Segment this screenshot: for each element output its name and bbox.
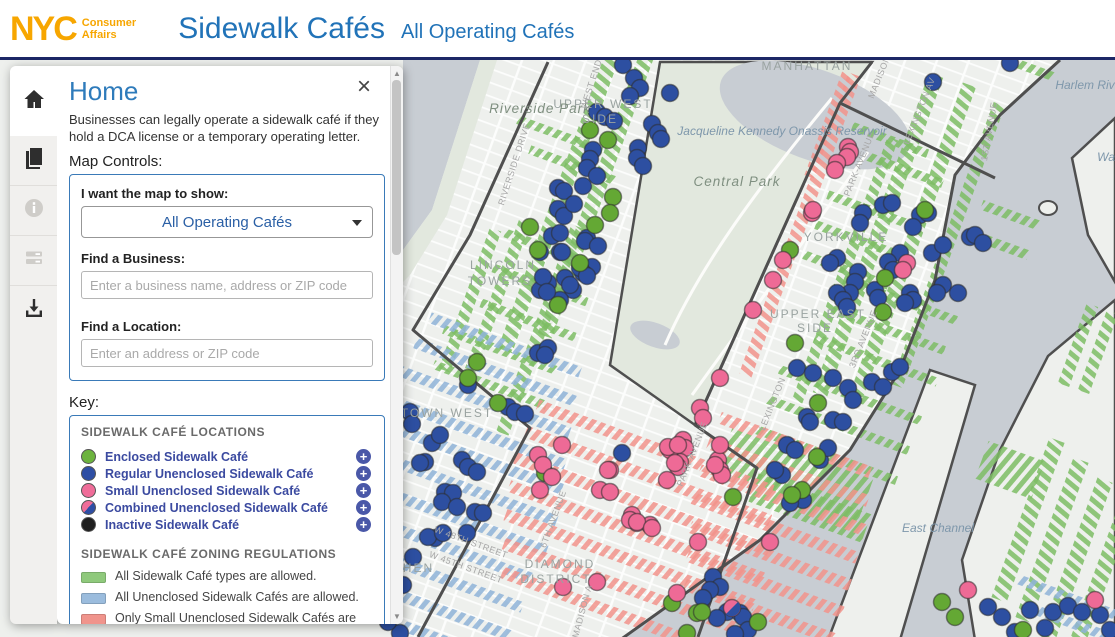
map-cafe-dot[interactable] [745,302,762,319]
map-cafe-dot[interactable] [1022,602,1039,619]
map-label-area: LINCOLN [470,258,536,272]
app-header: NYC Consumer Affairs Sidewalk Cafés All … [0,0,1115,60]
zoning-row: All Unenclosed Sidewalk Cafés are allowe… [81,590,373,605]
map-label-area: DISTRICT [520,572,591,586]
map-show-select[interactable]: All Operating Cafés [81,206,373,238]
map-cafe-dot[interactable] [572,255,589,272]
map-cafe-dot[interactable] [587,217,604,234]
chevron-down-icon [352,220,362,226]
map-label-park: Central Park [693,174,780,189]
map-cafe-dot[interactable] [934,594,951,611]
map-cafe-dot[interactable] [659,472,676,489]
map-cafe-dot[interactable] [644,520,661,537]
close-icon[interactable]: × [357,76,371,98]
sidebar-item-home[interactable] [10,66,57,136]
home-icon [22,87,46,116]
sidebar-item-info[interactable] [10,186,57,236]
zone-all-types-swatch [81,572,106,583]
map-cafe-dot[interactable] [635,158,652,175]
sidebar-item-layers[interactable] [10,236,57,286]
find-business-label: Find a Business: [81,251,373,266]
map-cafe-dot[interactable] [727,626,744,637]
zone-small-only-swatch [81,614,106,624]
map-cafe-dot[interactable] [554,244,571,261]
add-small-icon[interactable]: + [356,483,371,498]
map-cafe-dot[interactable] [897,295,914,312]
map-cafe-dot[interactable] [787,442,804,459]
legend-row: Enclosed Sidewalk Café + [81,448,373,465]
zoning-row: All Sidewalk Café types are allowed. [81,569,373,584]
page-title: Sidewalk Cafés [178,12,385,46]
map-cafe-dot[interactable] [822,255,839,272]
sidebar-item-pages[interactable] [10,136,57,186]
map-cafe-dot[interactable] [884,195,901,212]
find-location-label: Find a Location: [81,319,373,334]
map-cafe-dot[interactable] [537,347,554,364]
nyc-logo: NYC [10,12,76,46]
page-subtitle: All Operating Cafés [401,13,574,44]
map-cafe-dot[interactable] [877,270,894,287]
map-cafe-dot[interactable] [690,534,707,551]
map-cafe-dot[interactable] [550,297,567,314]
add-combined-icon[interactable]: + [356,500,371,515]
map-label-area: YORKVILLE [804,230,889,244]
map-label-water: East Channel [902,521,974,535]
panel-content: × Home Businesses can legally operate a … [57,66,403,624]
map-cafe-dot[interactable] [1015,622,1032,637]
map-cafe-dot[interactable] [602,205,619,222]
map-cafe-dot[interactable] [653,131,670,148]
agency-name: Consumer Affairs [82,17,136,41]
map-cafe-dot[interactable] [835,414,852,431]
map-cafe-dot[interactable] [712,437,729,454]
map-label-area: MANHATTAN [762,59,853,73]
zone-unenclosed-swatch [81,593,106,604]
add-inactive-icon[interactable]: + [356,517,371,532]
map-cafe-dot[interactable] [852,215,869,232]
map-cafe-dot[interactable] [532,482,549,499]
map-label-water: Wa [1097,150,1115,164]
map-cafe-dot[interactable] [960,582,977,599]
panel-title: Home [69,76,387,107]
map-cafe-dot[interactable] [530,242,547,259]
map-cafe-dot[interactable] [892,359,909,376]
small-unenclosed-cafe-dot [81,483,96,498]
map-cafe-dot[interactable] [994,609,1011,626]
scroll-down-icon[interactable]: ▼ [391,610,403,623]
map-label-water: Jacqueline Kennedy Onassis Reservoir [676,124,887,138]
add-regular-icon[interactable]: + [356,466,371,481]
map-cafe-dot[interactable] [460,370,477,387]
map-cafe-dot[interactable] [432,427,449,444]
map-cafe-dot[interactable] [449,499,466,516]
map-cafe-dot[interactable] [517,406,534,423]
map-cafe-dot[interactable] [669,585,686,602]
map-cafe-dot[interactable] [475,505,492,522]
map-label-area: UPPER EAST [770,307,866,321]
map-cafe-dot[interactable] [802,414,819,431]
map-cafe-dot[interactable] [775,252,792,269]
map-label-area: DIAMOND [525,557,596,571]
map-cafe-dot[interactable] [600,132,617,149]
map-cafe-dot[interactable] [789,360,806,377]
map-cafe-dot[interactable] [809,449,826,466]
show-label: I want the map to show: [81,186,373,201]
map-label-area: TOWERS [468,274,532,288]
home-panel: × Home Businesses can legally operate a … [10,66,403,624]
legend-row: Small Unenclosed Sidewalk Café + [81,482,373,499]
map-cafe-dot[interactable] [670,437,687,454]
scroll-up-icon[interactable]: ▲ [391,67,403,80]
map-cafe-dot[interactable] [762,534,779,551]
map-cafe-dot[interactable] [600,462,617,479]
sidebar-item-download[interactable] [10,286,57,335]
map-cafe-dot[interactable] [590,238,607,255]
map-cafe-dot[interactable] [544,469,561,486]
map-cafe-dot[interactable] [875,379,892,396]
intro-text: Businesses can legally operate a sidewal… [69,111,385,145]
pages-icon [22,146,46,175]
map-cafe-dot[interactable] [750,614,767,631]
map-cafe-dot[interactable] [554,437,571,454]
map-cafe-dot[interactable] [694,604,711,621]
map-label-area: SIDE [797,321,833,335]
scrollbar-thumb[interactable] [392,80,401,255]
legend-row: Combined Unenclosed Sidewalk Café + [81,499,373,516]
map-cafe-dot[interactable] [787,335,804,352]
map-cafe-dot[interactable] [805,365,822,382]
enclosed-cafe-dot [81,449,96,464]
add-enclosed-icon[interactable]: + [356,449,371,464]
map-cafe-dot[interactable] [562,277,579,294]
inactive-cafe-dot [81,517,96,532]
map-cafe-dot[interactable] [575,178,592,195]
map-cafe-dot[interactable] [929,285,946,302]
map-cafe-dot[interactable] [605,189,622,206]
map-cafe-dot[interactable] [707,457,724,474]
map-cafe-dot[interactable] [552,225,569,242]
map-label-water: Harlem Riv [1055,78,1115,92]
map-cafe-dot[interactable] [917,202,934,219]
map-controls-box: I want the map to show: All Operating Ca… [69,174,385,381]
layers-icon [22,246,46,275]
map-cafe-dot[interactable] [947,609,964,626]
zoning-heading: SIDEWALK CAFÉ ZONING REGULATIONS [81,547,373,561]
map-cafe-dot[interactable] [725,489,742,506]
download-icon [22,296,46,325]
map-cafe-dot[interactable] [827,162,844,179]
map-cafe-dot[interactable] [602,484,619,501]
info-icon [22,196,46,225]
map-cafe-dot[interactable] [895,262,912,279]
map-cafe-dot[interactable] [1087,592,1104,609]
legend-row: Inactive Sidewalk Café + [81,516,373,533]
map-cafe-dot[interactable] [810,395,827,412]
map-cafe-dot[interactable] [412,455,429,472]
map-cafe-dot[interactable] [469,354,486,371]
map-cafe-dot[interactable] [712,370,729,387]
map-controls-label: Map Controls: [69,153,387,170]
map-cafe-dot[interactable] [975,235,992,252]
tool-sidebar [10,66,57,624]
map-cafe-dot[interactable] [1102,622,1115,637]
map-cafe-dot[interactable] [679,625,696,637]
map-label-park: Riverside Park [489,101,591,116]
map-cafe-dot[interactable] [767,462,784,479]
regular-unenclosed-cafe-dot [81,466,96,481]
map-cafe-dot[interactable] [566,196,583,213]
key-box: SIDEWALK CAFÉ LOCATIONS Enclosed Sidewal… [69,415,385,624]
panel-scrollbar[interactable]: ▲ ▼ [390,66,403,624]
locations-heading: SIDEWALK CAFÉ LOCATIONS [81,425,373,439]
legend-row: Regular Unenclosed Sidewalk Café + [81,465,373,482]
map-cafe-dot[interactable] [805,202,822,219]
map-cafe-dot[interactable] [1074,604,1091,621]
map-cafe-dot[interactable] [522,219,539,236]
map-cafe-dot[interactable] [662,85,679,102]
map-cafe-dot[interactable] [1037,620,1054,637]
map-cafe-dot[interactable] [950,285,967,302]
map-cafe-dot[interactable] [825,370,842,387]
map-cafe-dot[interactable] [845,392,862,409]
map-cafe-dot[interactable] [784,487,801,504]
key-label: Key: [69,394,387,411]
combined-unenclosed-cafe-dot [81,500,96,515]
map-cafe-dot[interactable] [905,219,922,236]
map-cafe-dot[interactable] [535,269,552,286]
find-location-input[interactable] [81,339,373,367]
map-show-value: All Operating Cafés [162,214,292,231]
map-cafe-dot[interactable] [469,464,486,481]
find-business-input[interactable] [81,271,373,299]
map-land-area [1039,201,1057,215]
zoning-row: Only Small Unenclosed Sidewalk Cafés are… [81,611,373,624]
map-cafe-dot[interactable] [935,237,952,254]
map-cafe-dot[interactable] [765,272,782,289]
map-cafe-dot[interactable] [614,445,631,462]
